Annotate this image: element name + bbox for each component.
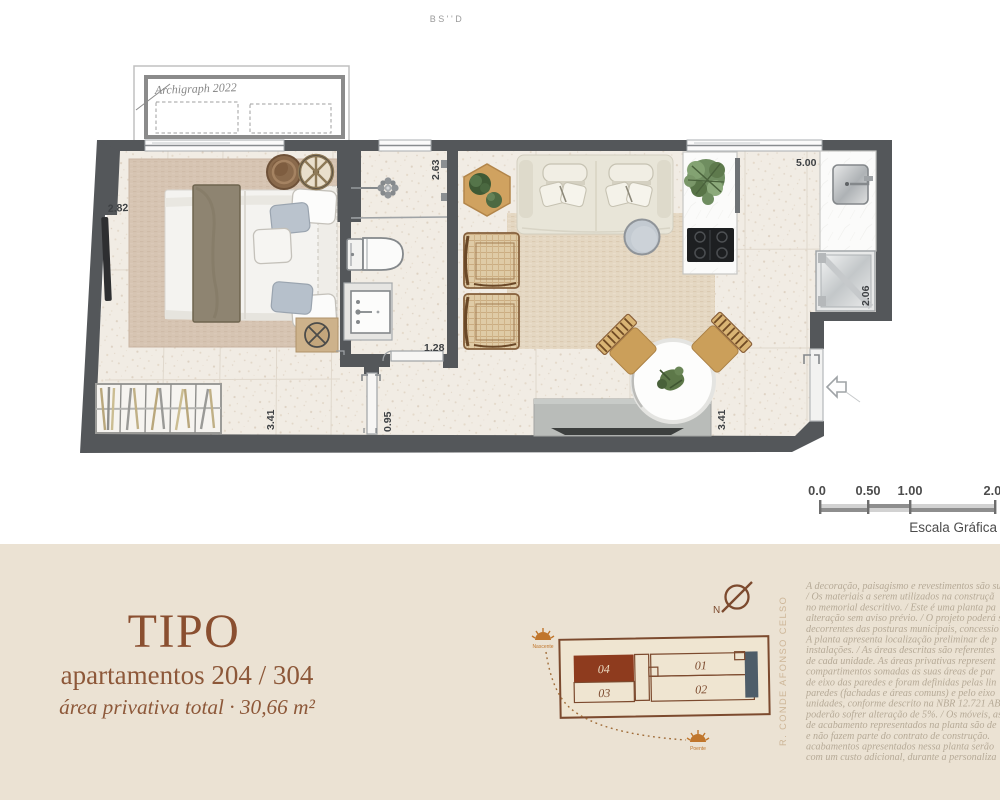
svg-text:paredes (fachadas e áreas comu: paredes (fachadas e áreas comuns) e pelo… (805, 688, 995, 699)
svg-text:alteração sem aviso prévio. /: alteração sem aviso prévio. / O projeto … (806, 613, 1000, 624)
svg-text:acabamentos apresentados nessa: acabamentos apresentados nessa planta se… (806, 742, 994, 753)
svg-text:A decoração, paisagismo e reve: A decoração, paisagismo e revestimentos … (805, 581, 1000, 592)
svg-text:/ Os materiais a serem utiliza: / Os materiais a serem utilizados na con… (805, 592, 995, 603)
svg-text:área privativa total · 30,66 m: área privativa total · 30,66 m² (59, 695, 315, 719)
svg-text:2.06: 2.06 (860, 285, 872, 306)
svg-text:R. CONDE AFONSO CELSO: R. CONDE AFONSO CELSO (778, 596, 788, 746)
svg-text:3.41: 3.41 (716, 409, 728, 430)
svg-text:BS''D: BS''D (430, 14, 464, 24)
svg-text:de cada unidade. As áreas priv: de cada unidade. As áreas privativas rep… (806, 656, 997, 667)
svg-text:04: 04 (598, 662, 610, 676)
svg-text:com um custo adicional, durant: com um custo adicional, durante a person… (806, 752, 996, 763)
svg-text:Poente: Poente (690, 746, 706, 752)
svg-text:0.50: 0.50 (856, 483, 881, 498)
svg-text:Escala Gráfica: Escala Gráfica (909, 520, 997, 535)
svg-text:N: N (713, 605, 720, 616)
svg-text:1.28: 1.28 (424, 342, 445, 354)
svg-text:de acabamento representados na: de acabamento representados na planta sã… (806, 720, 997, 731)
svg-text:apartamentos 204 / 304: apartamentos 204 / 304 (61, 660, 314, 690)
svg-text:0.0: 0.0 (808, 483, 826, 498)
svg-text:de eixo das paredes e foram de: de eixo das paredes e foram definidas pe… (806, 677, 996, 688)
svg-text:Archigraph 2022: Archigraph 2022 (154, 80, 237, 97)
svg-text:decorrentes das posturas munic: decorrentes das posturas municipais, con… (806, 624, 999, 635)
svg-text:e não fazem parte do contrato: e não fazem parte do contrato de constru… (806, 731, 990, 742)
svg-text:instalações. / As áreas descri: instalações. / As áreas descritas são re… (806, 645, 995, 656)
svg-text:TIPO: TIPO (128, 605, 241, 658)
svg-text:0.95: 0.95 (382, 411, 394, 432)
svg-text:2.63: 2.63 (430, 159, 442, 180)
svg-text:1.00: 1.00 (898, 483, 923, 498)
svg-text:A planta apresenta localização: A planta apresenta localização prelimina… (805, 635, 997, 646)
svg-text:Nascente: Nascente (532, 644, 553, 650)
svg-text:02: 02 (695, 682, 707, 696)
svg-text:compartimentos somadas as suas: compartimentos somadas as suas áreas de … (806, 667, 995, 678)
svg-text:03: 03 (598, 686, 610, 700)
svg-text:01: 01 (695, 658, 707, 672)
svg-text:no memorial descritivo. / Este: no memorial descritivo. / Este é uma pla… (806, 602, 996, 613)
svg-text:2.82: 2.82 (108, 202, 129, 215)
svg-text:poderão sofrer alteração de 5%: poderão sofrer alteração de 5%. / Os móv… (805, 709, 1000, 720)
svg-text:5.00: 5.00 (796, 157, 817, 169)
svg-text:2.00: 2.00 (984, 483, 1000, 498)
svg-text:3.41: 3.41 (265, 409, 277, 430)
svg-text:unidades, conforme descrito na: unidades, conforme descrito na NBR 12.72… (806, 699, 1000, 710)
